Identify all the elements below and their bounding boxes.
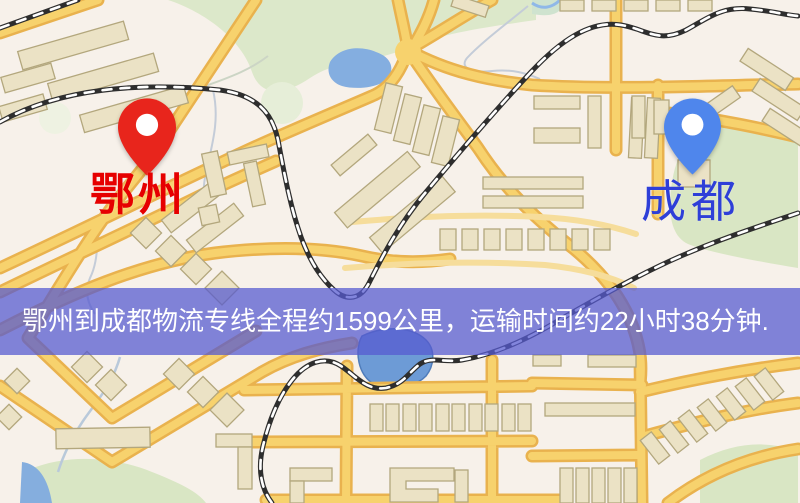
route-info-banner: 鄂州到成都物流专线全程约1599公里，运输时间约22小时38分钟. xyxy=(0,288,800,355)
origin-pin-icon xyxy=(118,98,176,176)
route-info-text: 鄂州到成都物流专线全程约1599公里，运输时间约22小时38分钟. xyxy=(22,306,769,337)
map-view: 鄂州 成都 鄂州到成都物流专线全程约1599公里，运输时间约22小时38分钟. xyxy=(0,0,800,503)
origin-city-label: 鄂州 xyxy=(90,172,186,217)
map-background xyxy=(0,0,800,503)
destination-pin-body xyxy=(664,99,721,175)
origin-pin-hole xyxy=(136,114,158,136)
destination-pin-icon xyxy=(664,98,721,175)
destination-pin-hole xyxy=(682,114,704,136)
origin-pin-body xyxy=(118,98,176,175)
destination-city-label: 成都 xyxy=(641,179,741,224)
